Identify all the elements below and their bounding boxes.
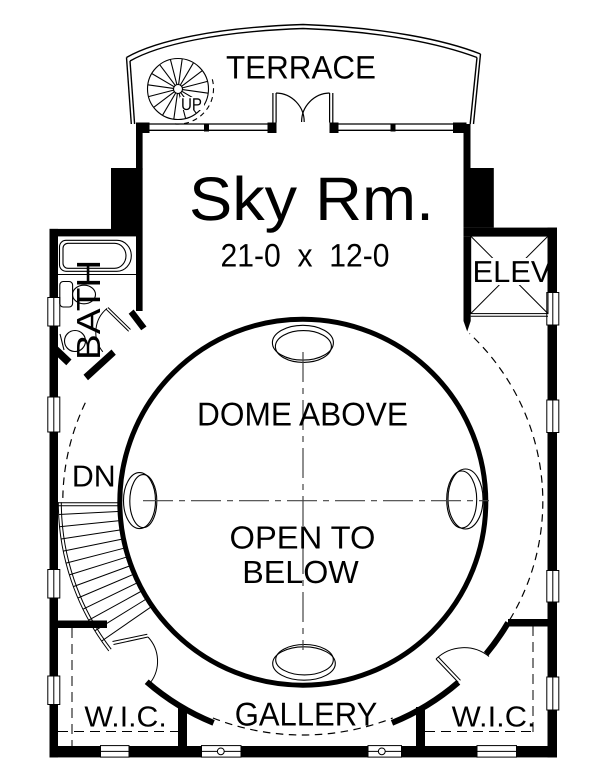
svg-text:W.I.C.: W.I.C. — [452, 702, 536, 734]
svg-text:ELEV: ELEV — [473, 256, 553, 289]
svg-text:BELOW: BELOW — [242, 554, 359, 590]
svg-text:21-0 x 12-0: 21-0 x 12-0 — [221, 238, 390, 274]
svg-text:GALLERY: GALLERY — [235, 696, 378, 733]
svg-text:OPEN TO: OPEN TO — [230, 520, 376, 556]
svg-text:W.I.C.: W.I.C. — [84, 702, 166, 734]
svg-text:UP: UP — [181, 95, 202, 114]
svg-text:TERRACE: TERRACE — [226, 49, 376, 86]
svg-text:BATH: BATH — [71, 260, 108, 360]
svg-text:DN: DN — [72, 460, 116, 493]
svg-text:DOME ABOVE: DOME ABOVE — [197, 396, 408, 433]
svg-text:Sky Rm.: Sky Rm. — [189, 165, 434, 234]
